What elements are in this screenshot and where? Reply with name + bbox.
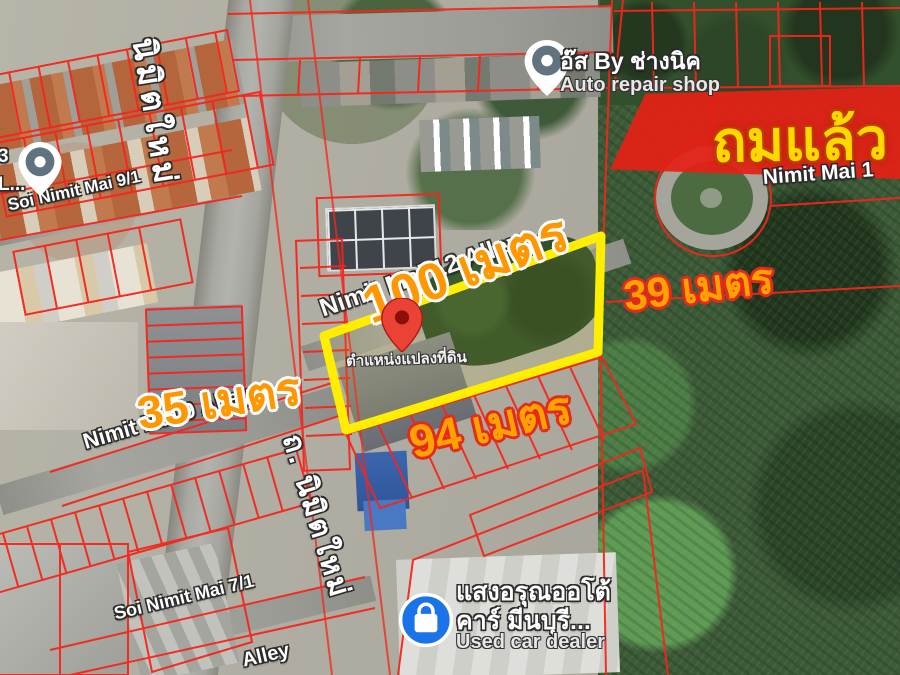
roundabout-monument bbox=[700, 188, 722, 208]
plot-location-pin-icon[interactable] bbox=[381, 298, 423, 352]
place-category-used-car: Used car dealer bbox=[456, 631, 605, 654]
building-blue-roof-2 bbox=[363, 499, 407, 531]
shopping-pin-icon-used-car[interactable] bbox=[398, 592, 454, 648]
left-garage-area bbox=[0, 322, 138, 430]
edge-fragment-a: 3 bbox=[0, 146, 9, 168]
place-category-auto-repair: Auto repair shop bbox=[560, 74, 720, 97]
place-pin-icon-soi91[interactable] bbox=[18, 142, 62, 196]
plot-pin-caption: ตำแหน่งแปลงที่ดิน bbox=[346, 345, 468, 373]
container-yard bbox=[419, 116, 541, 172]
satellite-map[interactable]: ถมแล้ว นิมิตใหม่ ถ. นิมิตใหม่ Soi Nimit … bbox=[0, 0, 900, 675]
warehouse-bottom-left-1 bbox=[0, 542, 128, 675]
